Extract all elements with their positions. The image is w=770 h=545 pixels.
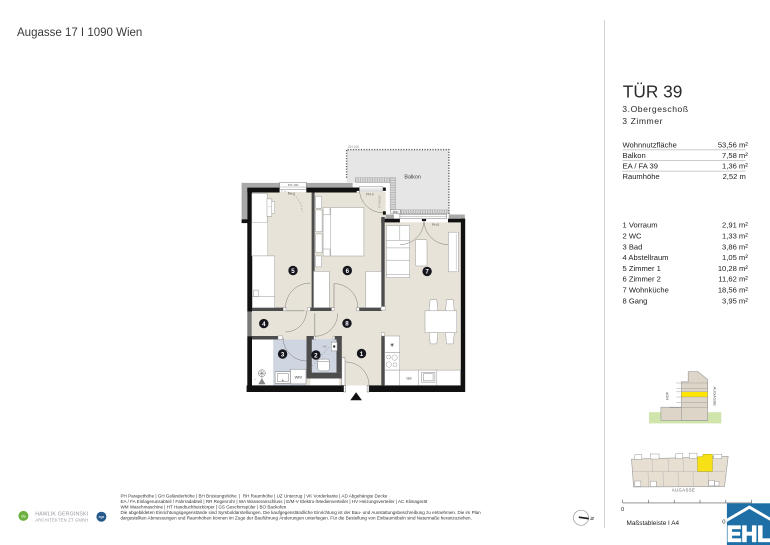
svg-text:AUGASSE: AUGASSE <box>713 387 718 407</box>
svg-text:3 Zimmer: 3 Zimmer <box>622 116 663 126</box>
svg-text:4 Abstellraum: 4 Abstellraum <box>623 253 669 262</box>
svg-text:Maßstableiste I A4: Maßstableiste I A4 <box>627 520 680 527</box>
svg-text:1: 1 <box>360 351 364 358</box>
svg-text:53,56 m²: 53,56 m² <box>718 140 748 149</box>
svg-text:GH 100: GH 100 <box>348 145 359 149</box>
svg-text:dfa: dfa <box>21 514 26 518</box>
svg-text:0: 0 <box>621 507 624 513</box>
svg-text:2: 2 <box>314 352 318 359</box>
svg-text:7: 7 <box>425 269 429 276</box>
svg-text:GS: GS <box>406 376 412 380</box>
svg-text:3,95 m²: 3,95 m² <box>722 296 748 305</box>
svg-text:ega: ega <box>99 515 105 519</box>
svg-text:4: 4 <box>262 321 266 328</box>
svg-text:6: 6 <box>346 268 350 275</box>
svg-text:Die abgebildeten Einrichtungsg: Die abgebildeten Einrichtungsgegenstände… <box>121 510 482 515</box>
svg-text:0: 0 <box>722 519 725 525</box>
svg-text:PH Parapethöhe | GH Geländerhö: PH Parapethöhe | GH Geländerhöhe | BH Br… <box>121 494 388 499</box>
svg-text:1,33 m²: 1,33 m² <box>722 232 748 241</box>
svg-text:10,28 m²: 10,28 m² <box>718 264 748 273</box>
svg-text:2,52 m: 2,52 m <box>723 172 746 181</box>
svg-text:EA / FA Einlagerunsabteil / Fa: EA / FA Einlagerunsabteil / Fahrradabtei… <box>121 499 429 504</box>
svg-text:WM: WM <box>295 375 302 380</box>
svg-text:FT 80/230: FT 80/230 <box>378 195 382 208</box>
svg-text:dargestellten Abmessungen und: dargestellten Abmessungen und Raumhöhen … <box>121 515 472 521</box>
svg-text:8 Gang: 8 Gang <box>623 296 648 305</box>
svg-text:ARCHITEKTEN ZT GMBH: ARCHITEKTEN ZT GMBH <box>35 518 88 523</box>
svg-text:5: 5 <box>291 268 295 275</box>
svg-text:Wohnnutzfläche: Wohnnutzfläche <box>623 140 677 149</box>
svg-text:3 Bad: 3 Bad <box>623 242 643 251</box>
svg-text:1,36 m²: 1,36 m² <box>722 162 748 171</box>
svg-text:PH 0: PH 0 <box>366 193 373 197</box>
svg-text:1,05 m²: 1,05 m² <box>722 253 748 262</box>
svg-text:3: 3 <box>281 351 285 358</box>
svg-text:Balkon: Balkon <box>404 175 420 181</box>
svg-text:3.Obergeschoß: 3.Obergeschoß <box>622 104 688 114</box>
svg-text:8: 8 <box>345 321 349 328</box>
svg-text:HOF: HOF <box>665 391 670 400</box>
svg-text:3,86 m²: 3,86 m² <box>722 242 748 251</box>
svg-text:2 WC: 2 WC <box>623 232 643 241</box>
svg-text:EA / FA 39: EA / FA 39 <box>623 162 658 171</box>
svg-text:2,91 m²: 2,91 m² <box>722 221 748 230</box>
svg-text:N: N <box>588 516 595 521</box>
svg-text:5 Zimmer 1: 5 Zimmer 1 <box>623 264 661 273</box>
svg-text:18,56 m²: 18,56 m² <box>718 286 748 295</box>
svg-text:WA: WA <box>393 210 398 214</box>
svg-text:7,58 m²: 7,58 m² <box>722 151 748 160</box>
svg-text:HV: HV <box>323 344 327 348</box>
svg-text:TÜR 39: TÜR 39 <box>623 82 683 102</box>
svg-text:WM Waschmaschine | HT Handtuch: WM Waschmaschine | HT Handtuchheizkörper… <box>121 505 287 510</box>
svg-text:PH 0: PH 0 <box>288 192 295 196</box>
svg-text:Balkon: Balkon <box>623 151 646 160</box>
svg-text:1 Vorraum: 1 Vorraum <box>623 221 658 230</box>
svg-text:Raumhöhe: Raumhöhe <box>623 172 660 181</box>
svg-text:11,62 m²: 11,62 m² <box>718 275 748 284</box>
svg-text:7 Wohnküche: 7 Wohnküche <box>623 286 669 295</box>
svg-text:PH 0: PH 0 <box>432 223 439 227</box>
svg-text:AUGASSE: AUGASSE <box>672 487 696 492</box>
svg-text:FIX 100: FIX 100 <box>288 183 299 187</box>
svg-text:EHL: EHL <box>727 521 770 545</box>
svg-text:Augasse 17 I 1090 Wien: Augasse 17 I 1090 Wien <box>17 27 142 39</box>
svg-text:6 Zimmer 2: 6 Zimmer 2 <box>623 275 661 284</box>
